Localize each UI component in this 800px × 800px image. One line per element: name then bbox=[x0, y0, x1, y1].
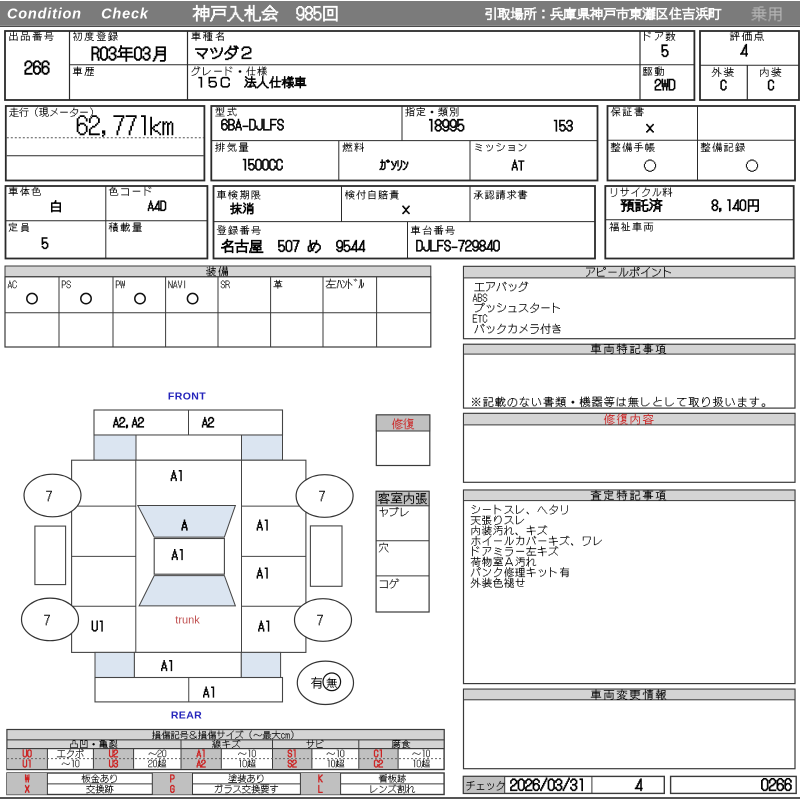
svg-text:FRONT: FRONT bbox=[168, 391, 206, 403]
svg-text:trunk: trunk bbox=[175, 615, 200, 627]
svg-text:Condition Check: Condition Check bbox=[7, 7, 149, 23]
svg-text:REAR: REAR bbox=[171, 710, 202, 722]
